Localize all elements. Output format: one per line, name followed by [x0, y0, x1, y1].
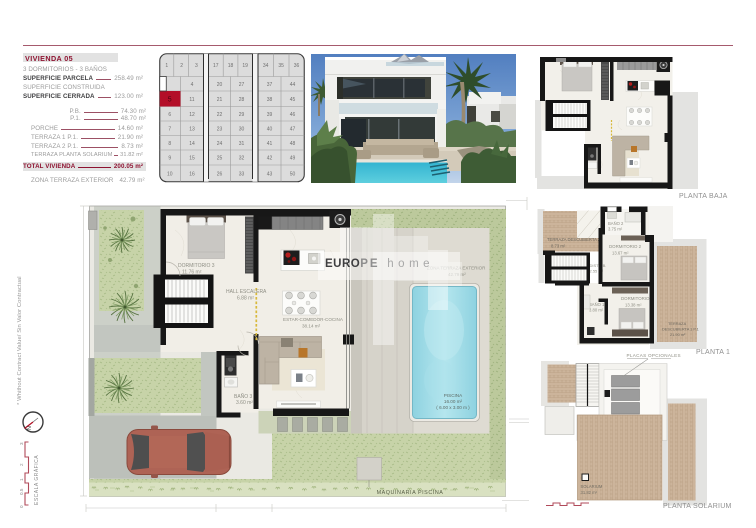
svg-text:3: 3 [195, 63, 198, 69]
svg-text:45: 45 [290, 97, 296, 103]
svg-text:20: 20 [217, 82, 223, 88]
svg-text:38.14 m²: 38.14 m² [302, 324, 321, 329]
svg-text:DORMITORIO 2: DORMITORIO 2 [609, 244, 642, 249]
svg-text:22: 22 [217, 112, 223, 118]
svg-text:10: 10 [167, 172, 173, 178]
svg-text:BAÑO 2: BAÑO 2 [608, 221, 624, 226]
svg-text:13: 13 [189, 126, 195, 132]
svg-text:31: 31 [239, 141, 245, 147]
svg-text:DISTRIB.: DISTRIB. [590, 263, 607, 268]
svg-text:2: 2 [19, 463, 24, 466]
svg-text:0.5: 0.5 [19, 488, 24, 495]
svg-text:41: 41 [267, 141, 273, 147]
svg-text:38: 38 [267, 97, 273, 103]
svg-text:32: 32 [239, 156, 245, 162]
svg-text:TERRAZA: TERRAZA [668, 321, 687, 326]
svg-text:3: 3 [19, 442, 24, 445]
svg-text:16: 16 [189, 172, 195, 178]
svg-text:13.38 m²: 13.38 m² [625, 303, 642, 308]
svg-text:19: 19 [242, 63, 248, 69]
svg-text:11: 11 [189, 97, 194, 103]
svg-text:BAÑO 1: BAÑO 1 [589, 302, 605, 307]
svg-text:N: N [27, 426, 33, 430]
svg-text:24: 24 [217, 141, 223, 147]
svg-text:11.76 m²: 11.76 m² [182, 270, 202, 276]
svg-text:BAÑO 3: BAÑO 3 [234, 393, 253, 400]
svg-text:7: 7 [168, 126, 171, 132]
svg-text:3.75 m²: 3.75 m² [608, 227, 623, 232]
svg-text:ESCALA GRÁFICA: ESCALA GRÁFICA [33, 455, 40, 505]
svg-text:9: 9 [168, 156, 171, 162]
svg-text:( 6.00 x 3.00 m ): ( 6.00 x 3.00 m ) [436, 405, 470, 410]
svg-text:3.60 m²: 3.60 m² [236, 400, 253, 406]
svg-text:16.00 m²: 16.00 m² [444, 399, 463, 404]
svg-text:26: 26 [217, 172, 223, 178]
svg-text:34: 34 [263, 63, 269, 69]
svg-text:40: 40 [267, 126, 273, 132]
svg-text:12: 12 [189, 112, 195, 118]
svg-text:31.82 m²: 31.82 m² [581, 490, 598, 495]
svg-text:6.88 m²: 6.88 m² [237, 296, 254, 302]
svg-text:13.67 m²: 13.67 m² [612, 251, 629, 256]
svg-text:30: 30 [239, 126, 245, 132]
svg-text:DESCUBIERTA 1 P.1: DESCUBIERTA 1 P.1 [662, 327, 699, 332]
svg-text:17: 17 [213, 63, 219, 69]
svg-text:DORMITORIO 1: DORMITORIO 1 [621, 296, 654, 301]
svg-text:44: 44 [290, 82, 296, 88]
svg-text:14: 14 [189, 141, 195, 147]
svg-text:49: 49 [290, 156, 296, 162]
svg-text:23: 23 [217, 126, 223, 132]
svg-text:48: 48 [290, 141, 296, 147]
svg-text:27: 27 [239, 82, 245, 88]
svg-text:PISCINA: PISCINA [444, 393, 463, 398]
svg-text:1: 1 [19, 478, 24, 481]
svg-text:ESTAR-COMEDOR-COCINA: ESTAR-COMEDOR-COCINA [283, 317, 344, 322]
svg-text:4: 4 [191, 82, 194, 88]
svg-text:3.80 m²: 3.80 m² [589, 308, 604, 313]
svg-text:15: 15 [189, 156, 195, 162]
svg-text:5: 5 [168, 96, 172, 103]
svg-text:21: 21 [217, 97, 223, 103]
svg-text:47: 47 [290, 126, 296, 132]
svg-text:28: 28 [239, 97, 245, 103]
svg-text:18: 18 [228, 63, 234, 69]
svg-text:* Whithout Contract Value/ Sin: * Whithout Contract Value/ Sin Valor Con… [17, 276, 23, 405]
svg-text:37: 37 [267, 82, 273, 88]
svg-text:46: 46 [290, 112, 296, 118]
svg-text:36: 36 [294, 63, 300, 69]
svg-text:1: 1 [165, 63, 168, 69]
svg-text:MAQUINARIA PISCINA: MAQUINARIA PISCINA [377, 490, 444, 496]
svg-text:50: 50 [290, 172, 296, 178]
svg-text:42: 42 [267, 156, 273, 162]
svg-text:SOLARIUM: SOLARIUM [581, 484, 603, 489]
svg-text:25: 25 [217, 156, 223, 162]
svg-text:29: 29 [239, 112, 245, 118]
svg-text:8.73 m²: 8.73 m² [551, 244, 566, 249]
svg-text:39: 39 [267, 112, 273, 118]
svg-text:6: 6 [168, 112, 171, 118]
svg-text:21.90 m²: 21.90 m² [670, 332, 686, 337]
svg-text:0: 0 [19, 505, 24, 508]
svg-text:HALL ESCALERA: HALL ESCALERA [226, 289, 267, 295]
svg-text:8: 8 [168, 141, 171, 147]
svg-text:2: 2 [180, 63, 183, 69]
svg-text:DORMITORIO 3: DORMITORIO 3 [178, 263, 215, 269]
svg-text:33: 33 [239, 172, 245, 178]
svg-text:43: 43 [267, 172, 273, 178]
svg-text:35: 35 [278, 63, 284, 69]
